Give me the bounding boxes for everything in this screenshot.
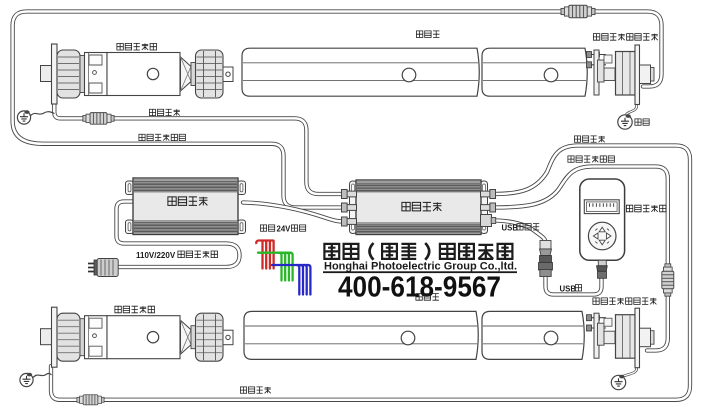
svg-text:Honghai Photoelectric Group Co: Honghai Photoelectric Group Co.,ltd. (324, 260, 517, 272)
svg-text:USB: USB (502, 223, 519, 232)
svg-text:USB: USB (560, 284, 577, 293)
svg-text:24V: 24V (277, 225, 292, 234)
svg-text:400-618-9567: 400-618-9567 (338, 272, 501, 304)
svg-text:110V/220V: 110V/220V (136, 251, 176, 260)
